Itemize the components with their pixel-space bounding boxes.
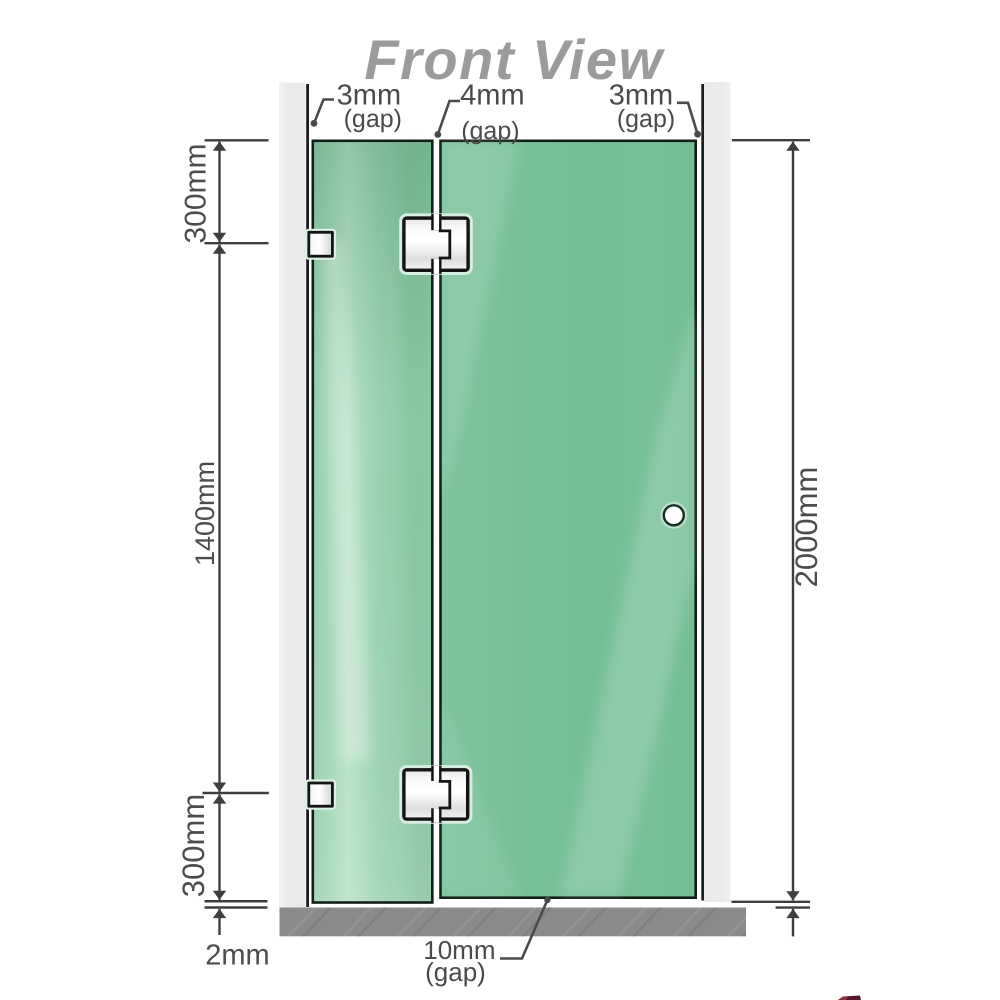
svg-text:4mm: 4mm — [460, 80, 524, 112]
svg-text:300mm: 300mm — [180, 143, 213, 243]
svg-text:300mm: 300mm — [176, 794, 211, 897]
svg-text:(gap): (gap) — [461, 117, 519, 145]
svg-text:2mm: 2mm — [205, 940, 269, 972]
svg-text:1400mm: 1400mm — [190, 461, 220, 566]
svg-text:(gap): (gap) — [617, 105, 675, 133]
svg-text:2000mm: 2000mm — [789, 467, 824, 588]
svg-text:(gap): (gap) — [425, 957, 486, 987]
svg-text:(gap): (gap) — [344, 105, 402, 133]
